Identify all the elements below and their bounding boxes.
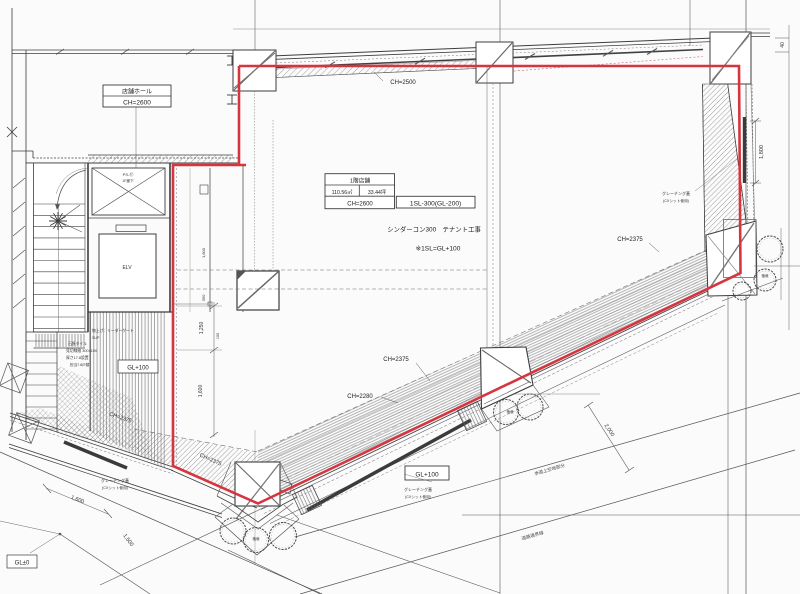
svg-text:植栽: 植栽	[253, 536, 261, 541]
svg-text:シンダーコン300 テナント工事: シンダーコン300 テナント工事	[387, 225, 481, 234]
svg-text:40: 40	[780, 42, 786, 48]
svg-text:1,800: 1,800	[759, 145, 765, 159]
svg-text:グレーチング蓋: グレーチング蓋	[662, 190, 690, 196]
svg-text:担当7.8戸替: 担当7.8戸替	[70, 362, 90, 367]
svg-text:1,600: 1,600	[198, 385, 204, 398]
svg-text:見切線維 300×100: 見切線維 300×100	[66, 348, 97, 353]
svg-text:CH=2375: CH=2375	[617, 237, 643, 243]
svg-text:1,800: 1,800	[201, 247, 206, 258]
svg-text:グレーチング蓋: グレーチング蓋	[101, 477, 129, 483]
svg-text:厚さ17.8設置: 厚さ17.8設置	[66, 355, 89, 360]
svg-text:GL+100: GL+100	[415, 472, 439, 479]
svg-text:石張タイル: 石張タイル	[68, 341, 87, 346]
svg-text:グレーチング蓋: グレーチング蓋	[404, 486, 432, 492]
svg-text:33.44坪: 33.44坪	[368, 188, 386, 196]
svg-text:1,250: 1,250	[199, 322, 205, 335]
svg-text:PS-⑰: PS-⑰	[123, 171, 134, 177]
svg-text:SUP: SUP	[92, 336, 100, 340]
svg-text:GL±0: GL±0	[15, 561, 30, 567]
svg-text:(CXシット使用): (CXシット使用)	[102, 485, 128, 490]
svg-text:1F廊下: 1F廊下	[122, 178, 134, 183]
svg-text:CH=2600: CH=2600	[123, 100, 151, 107]
svg-text:350: 350	[201, 294, 206, 301]
svg-text:植栽: 植栽	[507, 409, 515, 414]
svg-text:1階店舗: 1階店舗	[350, 176, 371, 184]
svg-text:CH=2600: CH=2600	[347, 201, 373, 207]
svg-text:(CXシット使用): (CXシット使用)	[663, 198, 689, 203]
svg-text:植栽: 植栽	[762, 273, 770, 278]
svg-text:110.56㎡: 110.56㎡	[332, 188, 353, 196]
svg-text:CH=2280: CH=2280	[347, 394, 373, 400]
svg-text:CH=2500: CH=2500	[390, 80, 416, 86]
svg-text:100: 100	[216, 333, 220, 339]
svg-text:GL+100: GL+100	[127, 366, 149, 372]
svg-text:店舗ホール: 店舗ホール	[122, 88, 152, 96]
svg-text:物上げ：リーダーゲート: 物上げ：リーダーゲート	[92, 328, 134, 333]
svg-text:ELV: ELV	[122, 265, 132, 271]
svg-text:1SL-300(GL-200): 1SL-300(GL-200)	[410, 200, 461, 207]
svg-text:CH=2375: CH=2375	[383, 357, 409, 363]
svg-text:※1SL=GL+100: ※1SL=GL+100	[416, 246, 461, 253]
svg-text:(CXシット使用): (CXシット使用)	[405, 494, 431, 499]
